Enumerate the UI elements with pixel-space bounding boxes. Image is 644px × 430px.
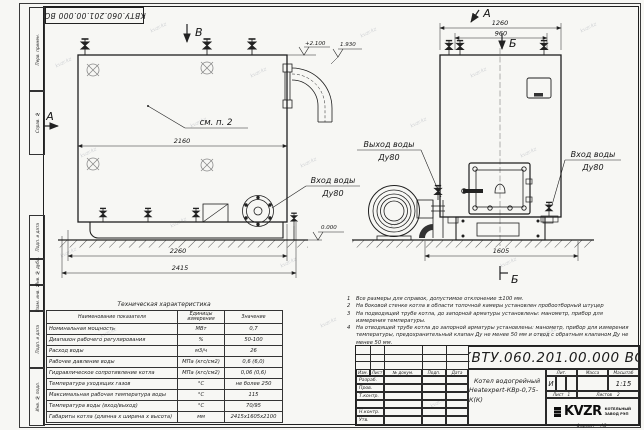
sig-cell [422,400,446,408]
spec-col-units: Единицы измерения [178,311,225,324]
spec-cell: °С [178,379,225,390]
spec-table: Наименование показателя Единицы измерени… [46,310,283,423]
outlet-pipe [419,200,445,238]
spec-cell: не более 250 [225,379,283,390]
spec-header-row: Наименование показателя Единицы измерени… [47,311,283,324]
inlet-left-label-2: Ду80 [321,189,343,198]
sig-cell [384,400,422,408]
sheets-label: Листов [596,392,612,397]
spec-cell: м3/ч [178,346,225,357]
drawing-sheet: kvzr.kz kvzr.kz kvzr.kz kvzr.kz kvzr.kz … [0,0,644,430]
note-item: 1Все размеры для справок, допустимое отк… [347,296,633,303]
logo-cell: KVZR КОТЕЛЬНЫЙ ЗАВОД РЭП [546,398,639,425]
outlet-label-2: Ду80 [377,153,399,162]
spec-cell: 0,06 (0,6) [225,368,283,379]
furnace-door [462,163,532,214]
lit-cell-2 [556,376,566,391]
note-number: 2 [347,303,356,310]
format-label: Формат А3 [545,423,638,430]
front-view-dimensions [425,23,578,261]
sheets-cell: Листов 2 [577,391,639,398]
lit-cell-3 [566,376,577,391]
sig-cell [384,376,422,384]
spec-cell: °С [178,401,225,412]
row-razrab: Разраб. [356,376,384,384]
spec-row: Диапазон рабочего регулирования%50-100 [47,335,283,346]
spec-row: Максимальная рабочая температура воды°С1… [47,390,283,401]
spec-cell: Температура уходящих газов [47,379,178,390]
spec-col-name: Наименование показателя [47,311,178,324]
elevation-flue: 1.930 [340,42,356,48]
row-utv: Утв. [356,416,384,425]
row-nkontr: Н.контр. [356,408,384,416]
product-name-line1: Котел водогрейный [474,377,540,386]
massa-header: Масса [577,369,608,376]
side-view [58,39,332,248]
product-name-line2: Heatexpert-КВр-0,75-К(К) [469,386,545,405]
sig-cell [446,400,468,408]
row-tkontr: Т.контр. [356,392,384,400]
sheet-label: Лист [553,392,564,397]
dim-1260: 1260 [492,19,509,27]
col-data: Дата [446,369,468,376]
sig-cell [446,392,468,400]
spec-cell: °С [178,390,225,401]
section-label-b-bottom: Б [511,273,519,286]
sig-cell [384,416,422,425]
sig-cell [422,408,446,416]
see-note-label: см. п. 2 [200,118,233,128]
dim-1605: 1605 [493,247,510,255]
spec-cell: 26 [225,346,283,357]
technical-characteristics: Техническая характеристика Наименование … [46,301,282,423]
spec-cell: Диапазон рабочего регулирования [47,335,178,346]
note-number: 4 [347,325,356,347]
lit-header: Лит. [546,369,577,376]
spec-cell: 50-100 [225,335,283,346]
spec-row: Температура уходящих газов°Сне более 250 [47,379,283,390]
spec-row: Температура воды (вход/выход)°С70/95 [47,401,283,412]
title-block-doc-number: КВТУ.060.201.00.000 ВО [468,346,639,369]
section-label-b-top: Б [509,37,517,50]
sig-cell [384,392,422,400]
sig-cell [446,384,468,392]
spec-cell: 2415х1605х2100 [225,412,283,423]
spec-cell: МВт [178,324,225,335]
spec-cell: Номинальная мощность [47,324,178,335]
inlet-left-label-1: Вход воды [311,176,356,185]
note-text: На боковой стенке котла в области топочн… [356,303,633,310]
note-number: 1 [347,296,356,303]
col-list: Лист [370,369,384,376]
view-label-a-side: А [45,110,54,123]
view-label-a-front: А [482,7,491,20]
note-item: 3На подводящей трубе котла, до запорной … [347,311,633,326]
sig-cell [422,376,446,384]
kvzr-logo-text: KVZR [564,404,602,419]
spec-cell: Габариты котла (длинна х ширина х высота… [47,412,178,423]
spec-cell: Температура воды (вход/выход) [47,401,178,412]
dim-2260: 2260 [170,247,187,255]
row-prov: Пров. [356,384,384,392]
elevation-ground: 0.000 [321,225,337,231]
note-text: На отводящей трубе котла до запорной арм… [356,325,633,347]
note-item: 2На боковой стенке котла в области топоч… [347,303,633,310]
spec-cell: 115 [225,390,283,401]
sheet-cell: Лист 1 [546,391,577,398]
sig-cell [422,416,446,425]
masshtab-header: Масштаб [608,369,639,376]
spec-row: Габариты котла (длинна х ширина х высота… [47,412,283,423]
product-name-cell: Котел водогрейный Heatexpert-КВр-0,75-К(… [468,369,546,425]
factory-line2: ЗАВОД РЭП [605,412,631,416]
note-text: На подводящей трубе котла, до запорной а… [356,311,633,326]
spec-cell: Максимальная рабочая температура воды [47,390,178,401]
col-ndok: № докум. [384,369,422,376]
inlet-right-label-2: Ду80 [581,163,603,172]
spec-cell: МПа (кгс/см2) [178,357,225,368]
spec-cell: Расход воды [47,346,178,357]
spec-cell: мм [178,412,225,423]
sig-cell [422,392,446,400]
spec-cell: % [178,335,225,346]
spec-table-title: Техническая характеристика [46,301,282,310]
elevation-top: +2.100 [305,41,326,47]
format-value: А3 [601,424,607,429]
sig-cell [422,384,446,392]
sig-cell [446,416,468,425]
flue-outlet [283,64,332,122]
spec-cell: Рабочее давление воды [47,357,178,368]
spec-cell: 70/95 [225,401,283,412]
sig-cell [384,384,422,392]
spec-row: Номинальная мощностьМВт0,7 [47,324,283,335]
note-number: 3 [347,311,356,326]
spec-cell: Гидравлическое сопротивление котла [47,368,178,379]
outlet-label-1: Выход воды [364,140,415,149]
scale-value: 1:15 [608,376,639,391]
spec-row: Рабочее давление водыМПа (кгс/см2)0,6 (6… [47,357,283,368]
sig-cell [446,376,468,384]
factory-name: КОТЕЛЬНЫЙ ЗАВОД РЭП [605,407,631,416]
notes-list: 1Все размеры для справок, допустимое отк… [347,296,633,347]
spec-cell: 0,6 (6,0) [225,357,283,368]
sheets-value: 2 [617,392,620,397]
note-text: Все размеры для справок, допустимое откл… [356,296,633,303]
kvzr-logo-icon [554,407,561,417]
title-block: КВТУ.060.201.00.000 ВО Изм. Лист № докум… [355,345,640,426]
massa-value [577,376,608,391]
dim-2160: 2160 [174,137,191,145]
side-view-dimensions [62,146,296,278]
factory-line1: КОТЕЛЬНЫЙ [605,407,631,411]
lit-value: И [546,376,556,391]
elevation-marks [287,47,362,240]
sig-cell [446,408,468,416]
inlet-right-label-1: Вход воды [571,150,616,159]
spec-col-value: Значение [225,311,283,324]
spec-row: Гидравлическое сопротивление котлаМПа (к… [47,368,283,379]
dim-2415: 2415 [172,264,189,272]
row-blank [356,400,384,408]
format-word: Формат [576,424,594,429]
spec-row: Расход водым3/ч26 [47,346,283,357]
spec-cell: 0,7 [225,324,283,335]
dim-960: 960 [495,30,507,38]
col-podp: Подп. [422,369,446,376]
sheet-value: 1 [567,392,570,397]
col-izm: Изм. [356,369,370,376]
spec-cell: МПа (кгс/см2) [178,368,225,379]
note-item: 4На отводящей трубе котла до запорной ар… [347,325,633,347]
view-label-v: В [195,26,203,39]
sig-cell [384,408,422,416]
